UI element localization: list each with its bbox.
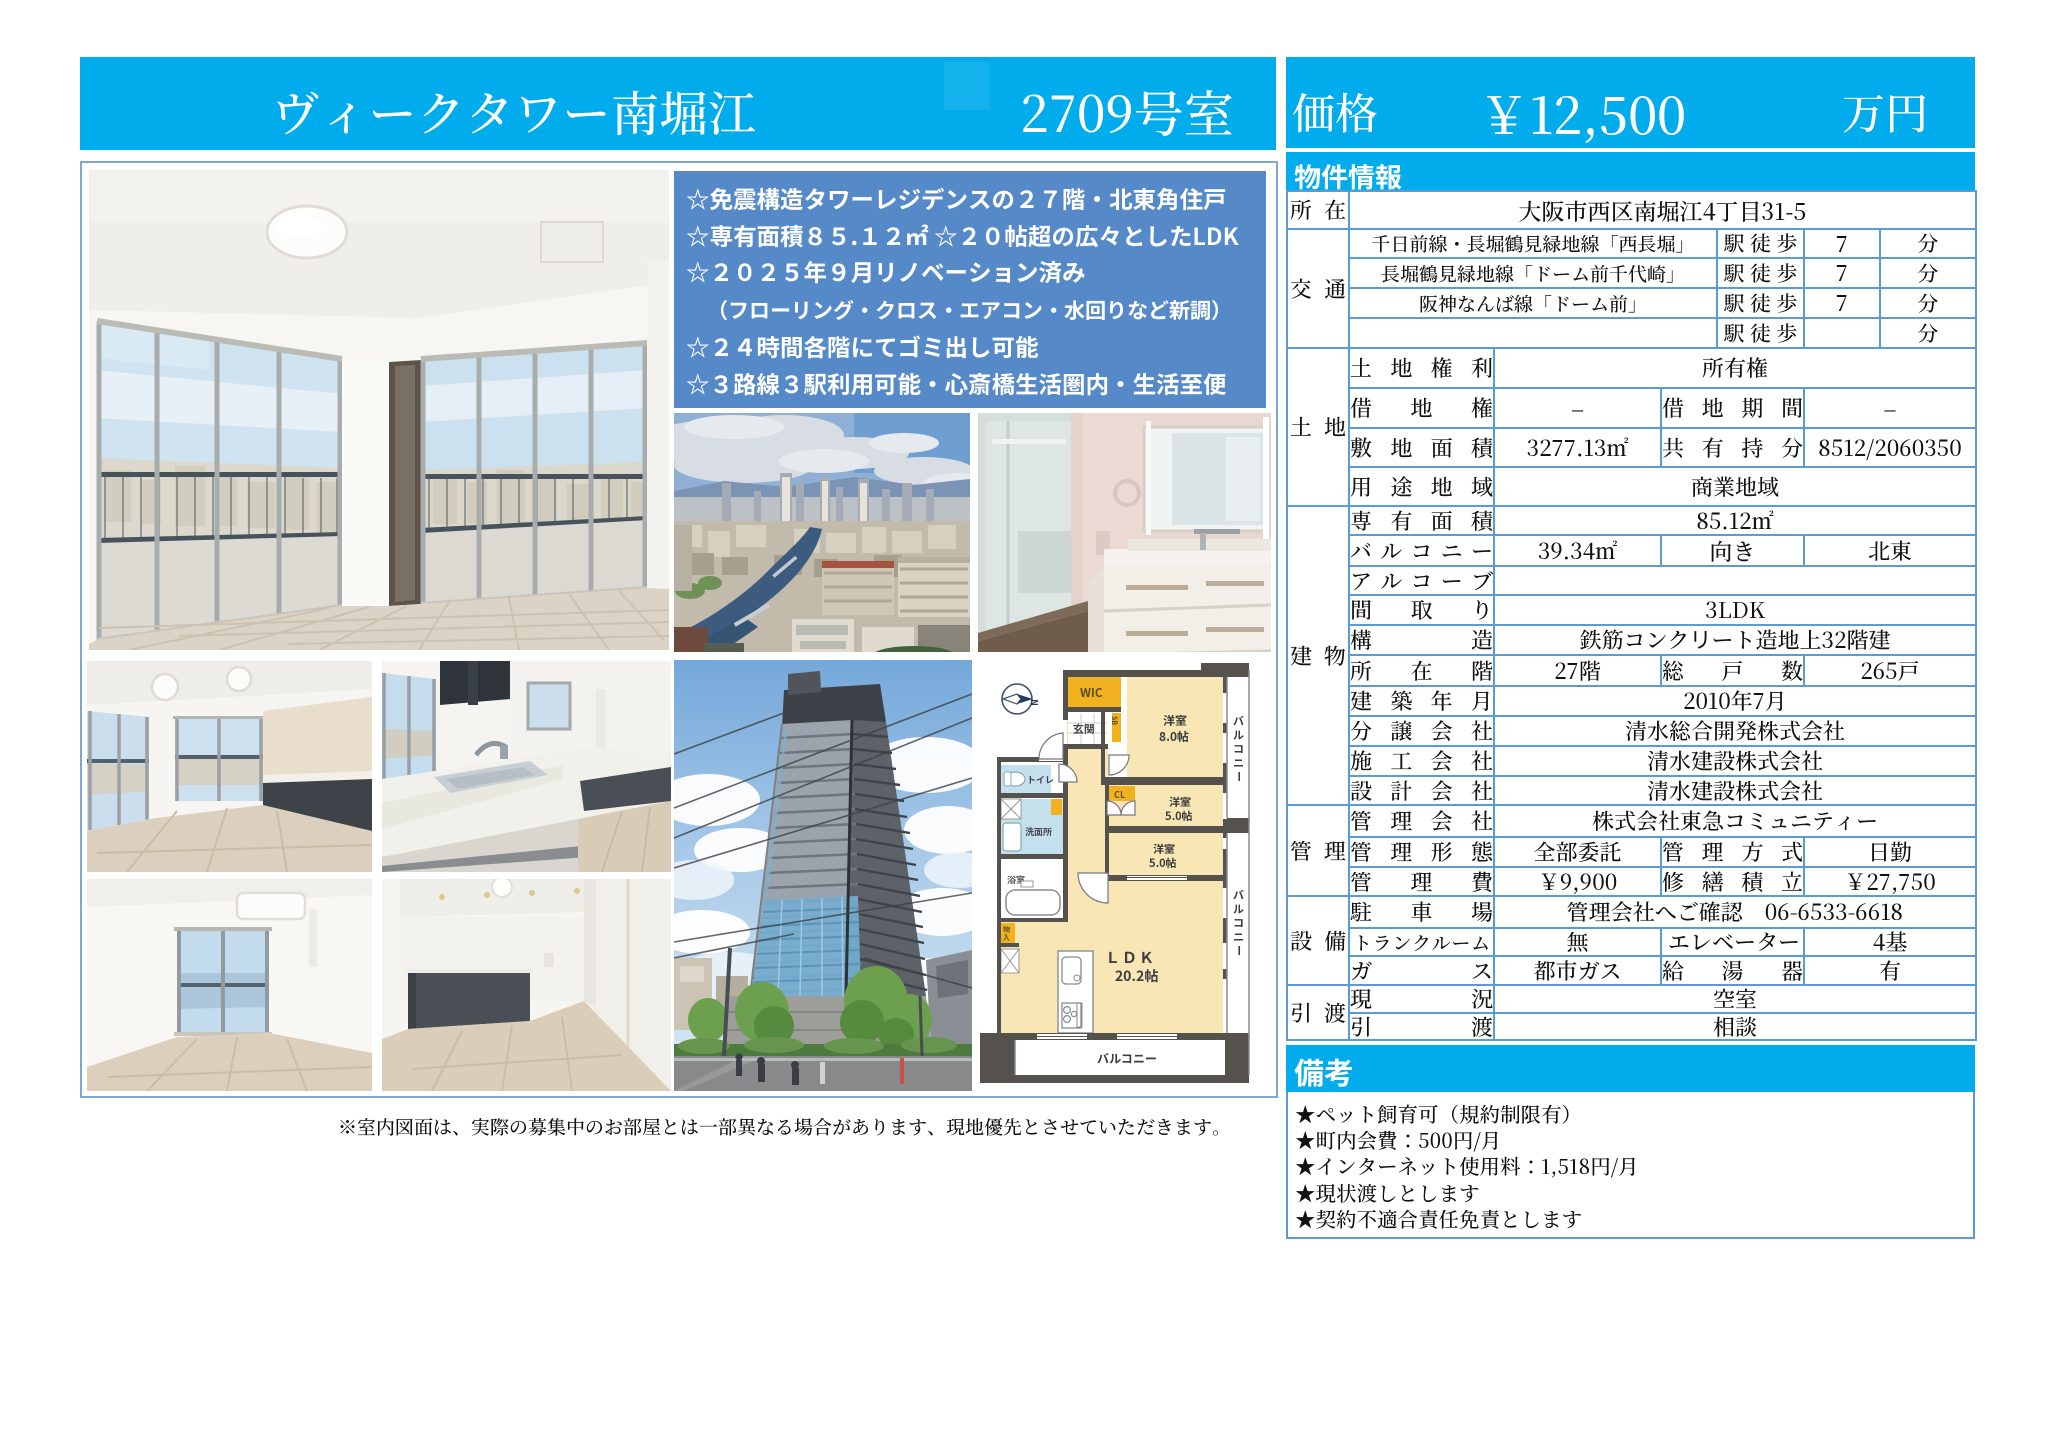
- svg-text:洋室: 洋室: [1163, 712, 1187, 729]
- svg-text:ＬＤＫ: ＬＤＫ: [1105, 947, 1156, 968]
- svg-text:ニ: ニ: [1233, 929, 1244, 945]
- svg-text:SB: SB: [1109, 716, 1119, 725]
- svg-text:ー: ー: [1231, 945, 1247, 956]
- svg-text:洗面所: 洗面所: [1024, 825, 1052, 838]
- svg-text:8.0帖: 8.0帖: [1159, 728, 1189, 745]
- svg-text:N: N: [1028, 699, 1041, 706]
- svg-text:5.0帖: 5.0帖: [1149, 855, 1177, 871]
- svg-text:ニ: ニ: [1233, 755, 1244, 771]
- svg-text:バルコニー: バルコニー: [1097, 1050, 1157, 1067]
- svg-text:WIC: WIC: [1080, 684, 1103, 701]
- svg-text:CL: CL: [1114, 788, 1125, 801]
- svg-text:玄関: 玄関: [1073, 721, 1095, 737]
- svg-text:ー: ー: [1231, 771, 1247, 782]
- svg-text:入: 入: [1003, 933, 1010, 943]
- svg-text:トイレ: トイレ: [1027, 773, 1054, 786]
- svg-text:5.0帖: 5.0帖: [1165, 808, 1193, 824]
- svg-text:20.2帖: 20.2帖: [1115, 966, 1158, 986]
